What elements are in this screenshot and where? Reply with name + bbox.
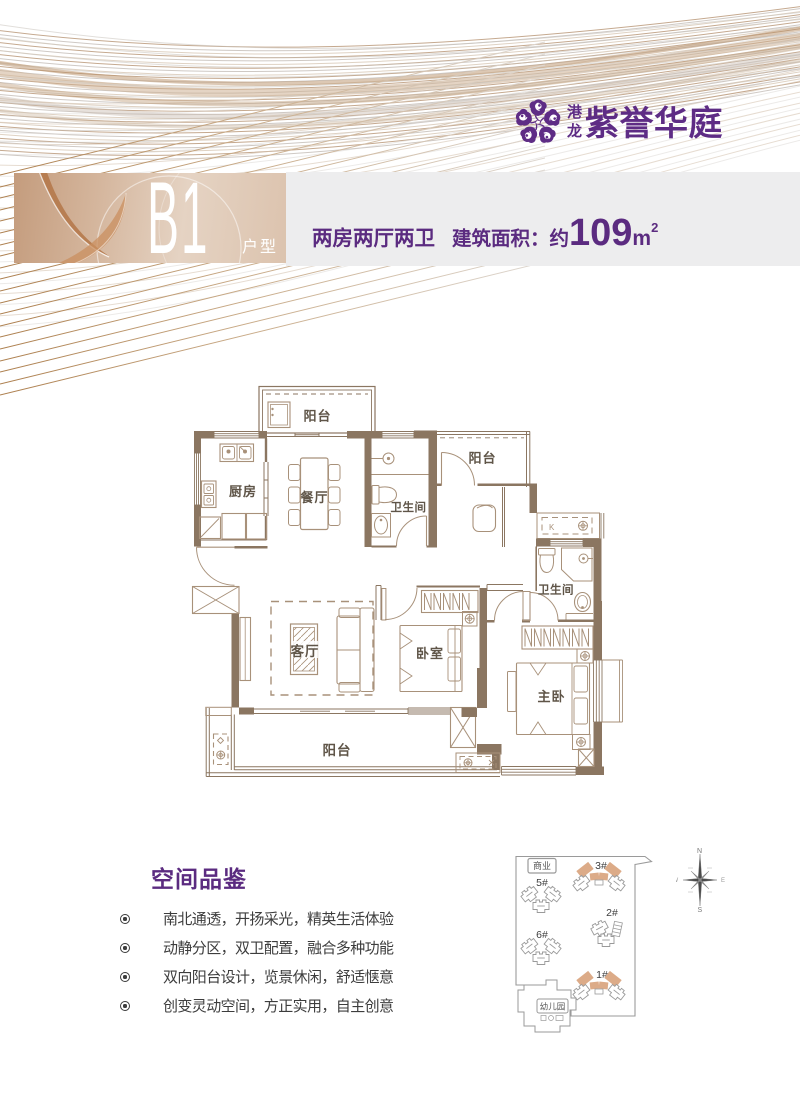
svg-text:厨房: 厨房 <box>229 484 257 499</box>
svg-text:E: E <box>721 878 725 884</box>
svg-text:商业: 商业 <box>533 860 551 871</box>
svg-text:餐厅: 餐厅 <box>299 490 328 505</box>
svg-text:W: W <box>676 878 679 884</box>
svg-text:客厅: 客厅 <box>290 643 320 659</box>
svg-text:紫誉华庭: 紫誉华庭 <box>585 104 723 143</box>
svg-text:3#: 3# <box>595 860 607 872</box>
svg-text:阳台: 阳台 <box>323 742 352 758</box>
svg-text:阳台: 阳台 <box>468 451 496 466</box>
svg-text:2#: 2# <box>606 907 618 919</box>
svg-text:幼儿园: 幼儿园 <box>540 1002 566 1012</box>
svg-text:6#: 6# <box>536 929 548 941</box>
svg-text:港: 港 <box>567 103 583 121</box>
svg-text:N: N <box>697 848 702 855</box>
svg-text:K: K <box>549 523 555 532</box>
svg-text:卧室: 卧室 <box>416 646 444 661</box>
svg-text:卫生间: 卫生间 <box>391 500 427 514</box>
svg-text:5#: 5# <box>536 877 548 889</box>
svg-text:S: S <box>698 907 703 912</box>
svg-text:阳台: 阳台 <box>303 409 331 424</box>
svg-text:卫生间: 卫生间 <box>538 583 574 597</box>
svg-text:主卧: 主卧 <box>537 689 565 704</box>
svg-text:龙: 龙 <box>566 122 582 140</box>
